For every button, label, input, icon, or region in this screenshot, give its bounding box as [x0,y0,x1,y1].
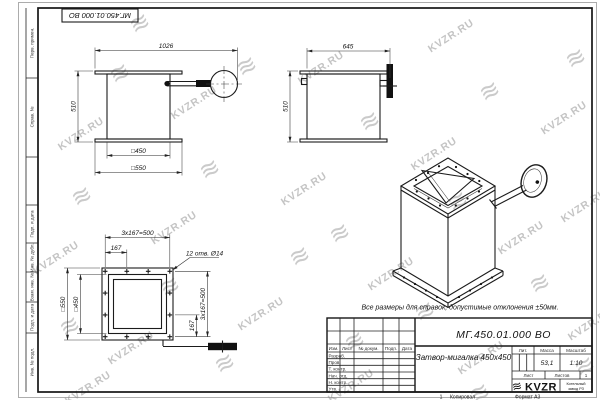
kvzr-logo-text: KVZR [525,382,557,394]
dim-plan-offset-top: 167 [111,245,122,252]
dim-plan-offset-right: 167 [189,320,196,331]
margin-label: Инв. № дубл. [30,243,35,271]
row-prov: Пров. [329,360,341,365]
col-list: Лист [342,346,353,351]
margin-label: Взам. инв. № [30,273,35,302]
mass-label: Масса [540,348,554,353]
dim-plan-outer: □550 [60,296,67,311]
plan-view: 3x167=500 167 12 отв. Ø14 □550 □450 3x16… [60,230,237,353]
margin-label: Справ. № [30,107,35,128]
margin-label: Перв. примен. [30,28,35,59]
scale-value: 1:10 [570,360,583,367]
col-sign: Подп. [385,346,397,351]
dim-plan-pitch-right: 3x167=500 [200,287,207,320]
company-line2: завод РЗ [568,387,585,391]
company-line1: Котельный [566,382,585,386]
footer-copy-label: Копировал [450,395,475,400]
dim-front-height: 510 [71,101,78,112]
mass-value: 53,1 [541,360,554,367]
corner-stamp-text: МГ.450.01.000 ВО [69,11,131,20]
part-name-text: Затвор-мигалка 450x450 [416,353,512,362]
margin-label: Подп. и дата [30,304,35,332]
side-view: 645 510 [283,44,398,143]
lit-label: Лит. [519,348,528,353]
kvzr-logo-icon: ≋ [511,378,524,394]
drawing-linework: Перв. примен. Справ. № Подп. и дата Инв.… [0,0,600,400]
sheets-value: 1 [585,373,588,378]
title-block: МГ.450.01.000 ВО Затвор-мигалка 450x450 … [327,318,592,394]
scale-label: Масштаб [566,348,586,353]
dim-plan-pitch-top: 3x167=500 [121,230,154,237]
row-tkontr: Т. контр. [329,367,347,372]
left-margin: Перв. примен. Справ. № Подп. и дата Инв.… [26,8,38,392]
front-view: 1026 510 □450 □550 [71,43,243,176]
dim-front-outer: □550 [131,165,146,172]
footer-num: 1 [440,395,443,400]
dim-front-inner: □450 [131,148,146,155]
corner-stamp: МГ.450.01.000 ВО [62,9,138,22]
row-razrab: Разраб. [329,354,346,359]
row-nachotd: Нач. отд. [329,373,348,378]
dim-front-width: 1026 [159,43,174,50]
drawing-sheet: KVZR.RUKVZR.RUKVZR.RUKVZR.RUKVZR.RUKVZR.… [0,0,600,400]
dim-side-height: 510 [283,101,290,112]
sheets-label: Листов [555,373,570,378]
designation-text: МГ.450.01.000 ВО [456,329,551,341]
plan-holes-note: 12 отв. Ø14 [186,251,224,258]
col-izm: Изм. [329,346,339,351]
iso-view [393,158,551,308]
lever-clamp [196,80,211,87]
col-doc: № докум. [358,346,378,351]
note-text: Все размеры для справок, допустимые откл… [361,304,558,312]
margin-label: Подп. и дата [30,210,35,238]
sheet-label: Лист [524,373,535,378]
row-utv: Утв. [329,387,338,392]
footer-format-label: Формат А3 [515,395,540,400]
row-nkontr: Н. контр. [329,380,348,385]
dim-side-width: 645 [343,44,354,51]
dim-plan-inner: □450 [73,296,80,311]
iso-counterweight-disc [517,161,551,200]
margin-label: Инв. № подл. [30,348,35,377]
col-date: Дата [402,346,413,351]
lever-pivot [164,81,169,86]
